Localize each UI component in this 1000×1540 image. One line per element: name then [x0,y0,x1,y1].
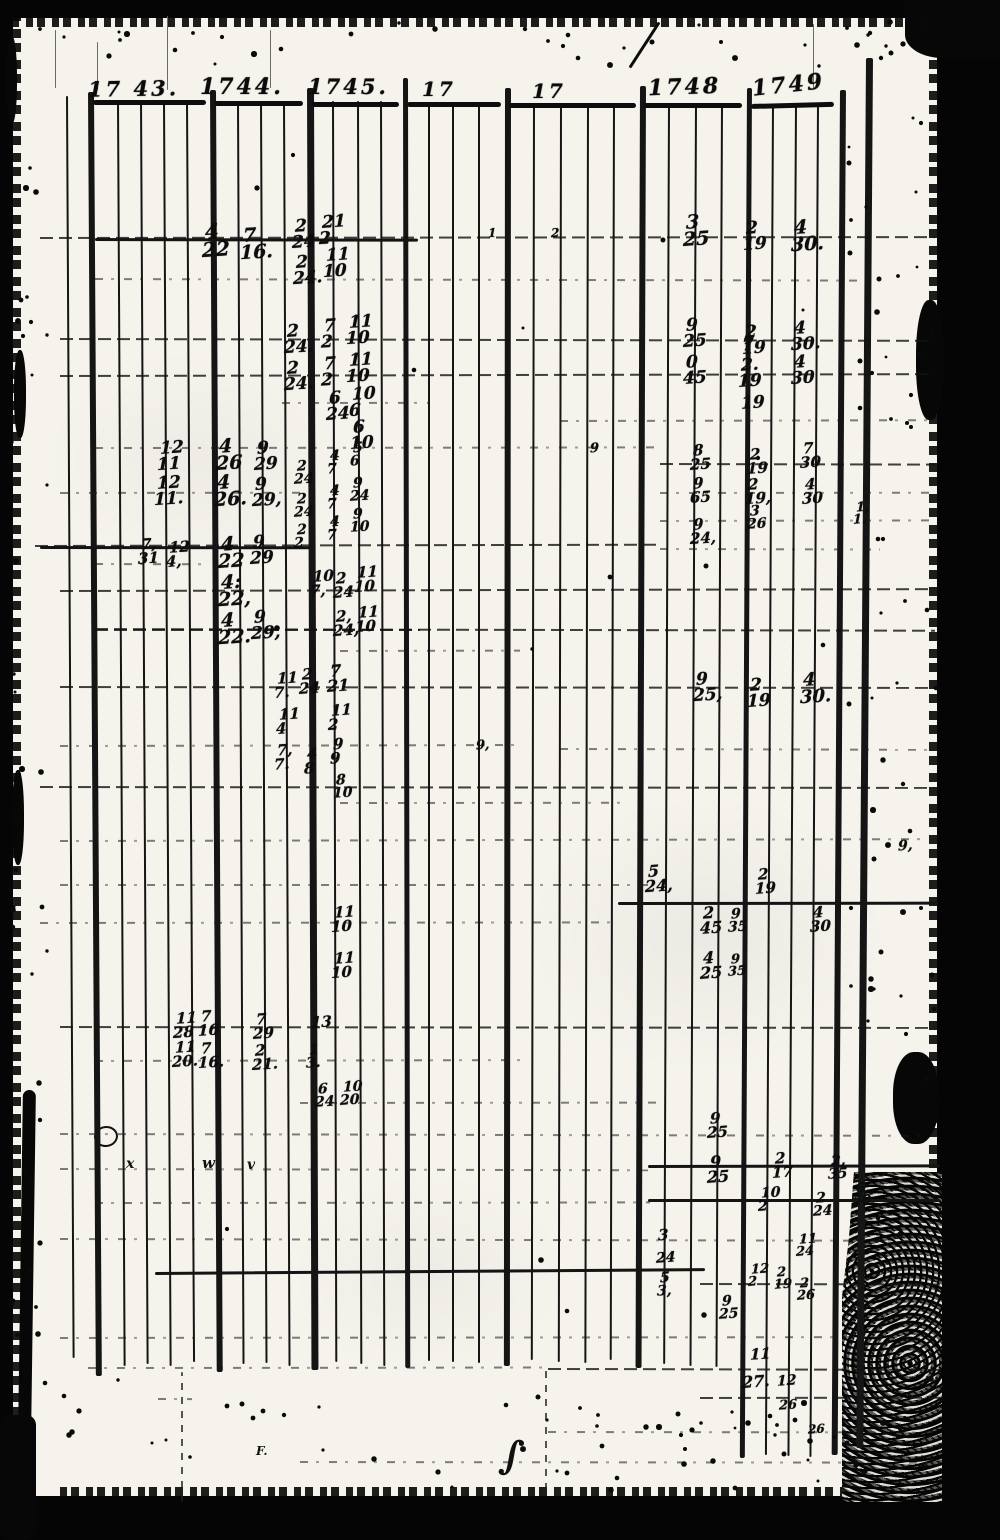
stray-mark: F. [256,1444,268,1458]
stray-mark: x [126,1156,134,1172]
scan-speckles [0,0,2,2]
stray-marks: xwvF.∫ [0,0,1000,1540]
stray-mark: w [202,1154,215,1172]
stray-mark: v [247,1157,255,1173]
stray-mark: ∫ [497,1431,526,1481]
scanned-ledger-page: 17 43.1744.1745.171717481749 422716.2242… [0,0,1000,1540]
